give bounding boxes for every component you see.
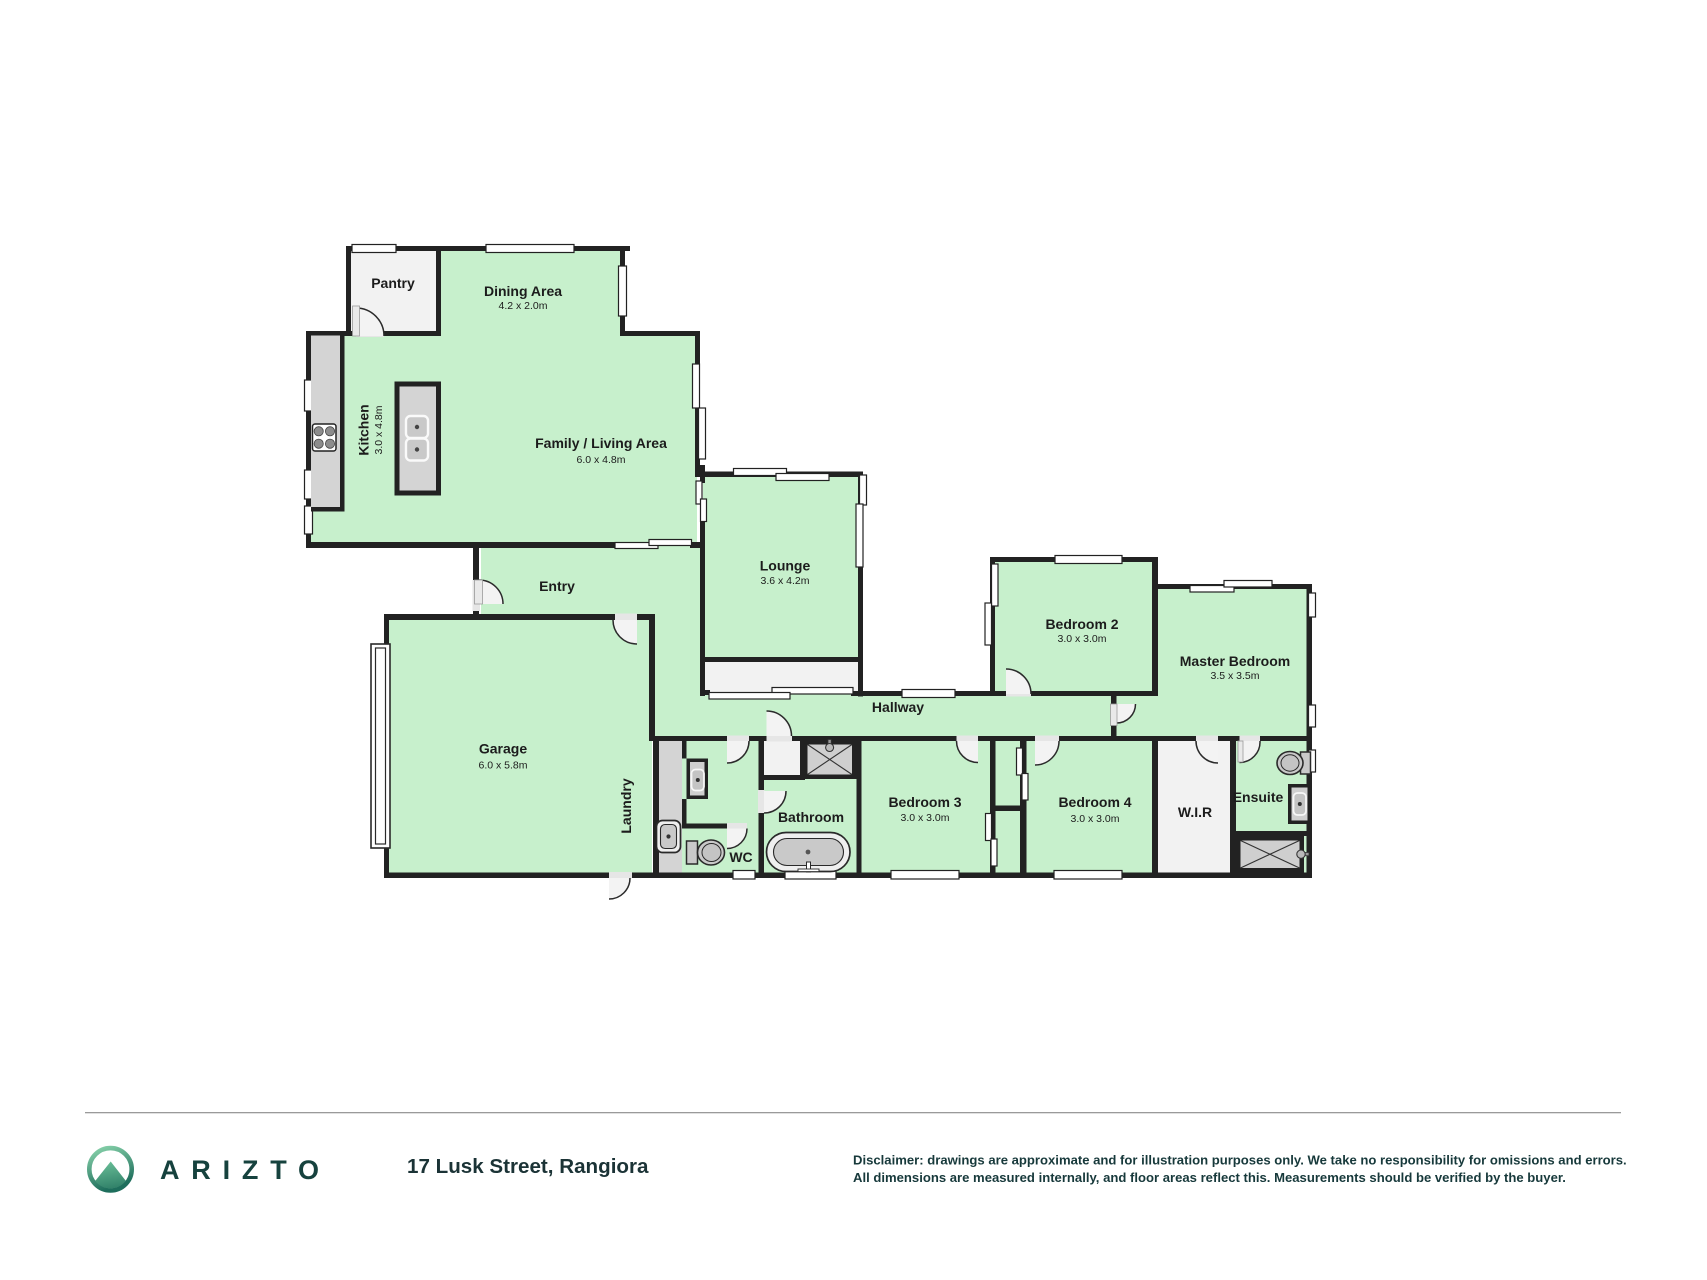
svg-text:Bedroom 3: Bedroom 3 (888, 794, 961, 810)
svg-text:Lounge: Lounge (760, 558, 811, 574)
svg-text:Master Bedroom: Master Bedroom (1180, 653, 1290, 669)
svg-text:Bedroom 4: Bedroom 4 (1058, 794, 1131, 810)
svg-text:WC: WC (729, 849, 752, 865)
svg-text:3.5 x 3.5m: 3.5 x 3.5m (1210, 670, 1259, 682)
svg-text:3.0 x 4.8m: 3.0 x 4.8m (373, 405, 385, 454)
svg-text:All dimensions are measured in: All dimensions are measured internally, … (853, 1170, 1566, 1185)
svg-text:Hallway: Hallway (872, 699, 924, 715)
svg-text:Disclaimer: drawings are appro: Disclaimer: drawings are approximate and… (853, 1153, 1627, 1168)
svg-text:4.2 x 2.0m: 4.2 x 2.0m (498, 300, 547, 312)
svg-text:6.0 x 5.8m: 6.0 x 5.8m (478, 760, 527, 772)
svg-text:Bathroom: Bathroom (778, 809, 844, 825)
svg-text:ARIZTO: ARIZTO (160, 1155, 331, 1185)
svg-text:3.0 x 3.0m: 3.0 x 3.0m (900, 812, 949, 824)
svg-text:3.6 x 4.2m: 3.6 x 4.2m (760, 575, 809, 587)
svg-text:Bedroom 2: Bedroom 2 (1045, 616, 1118, 632)
svg-text:Ensuite: Ensuite (1233, 789, 1284, 805)
svg-text:Laundry: Laundry (618, 778, 634, 833)
svg-text:6.0 x 4.8m: 6.0 x 4.8m (576, 454, 625, 466)
svg-text:Kitchen: Kitchen (356, 404, 372, 455)
svg-text:Pantry: Pantry (371, 275, 415, 291)
svg-text:Dining Area: Dining Area (484, 283, 562, 299)
svg-text:3.0 x 3.0m: 3.0 x 3.0m (1057, 633, 1106, 645)
svg-text:17 Lusk Street, Rangiora: 17 Lusk Street, Rangiora (407, 1155, 649, 1178)
svg-text:Family / Living Area: Family / Living Area (535, 435, 667, 451)
svg-text:W.I.R: W.I.R (1178, 804, 1212, 820)
svg-text:Entry: Entry (539, 578, 575, 594)
svg-text:3.0 x 3.0m: 3.0 x 3.0m (1070, 813, 1119, 825)
svg-text:Garage: Garage (479, 741, 527, 757)
